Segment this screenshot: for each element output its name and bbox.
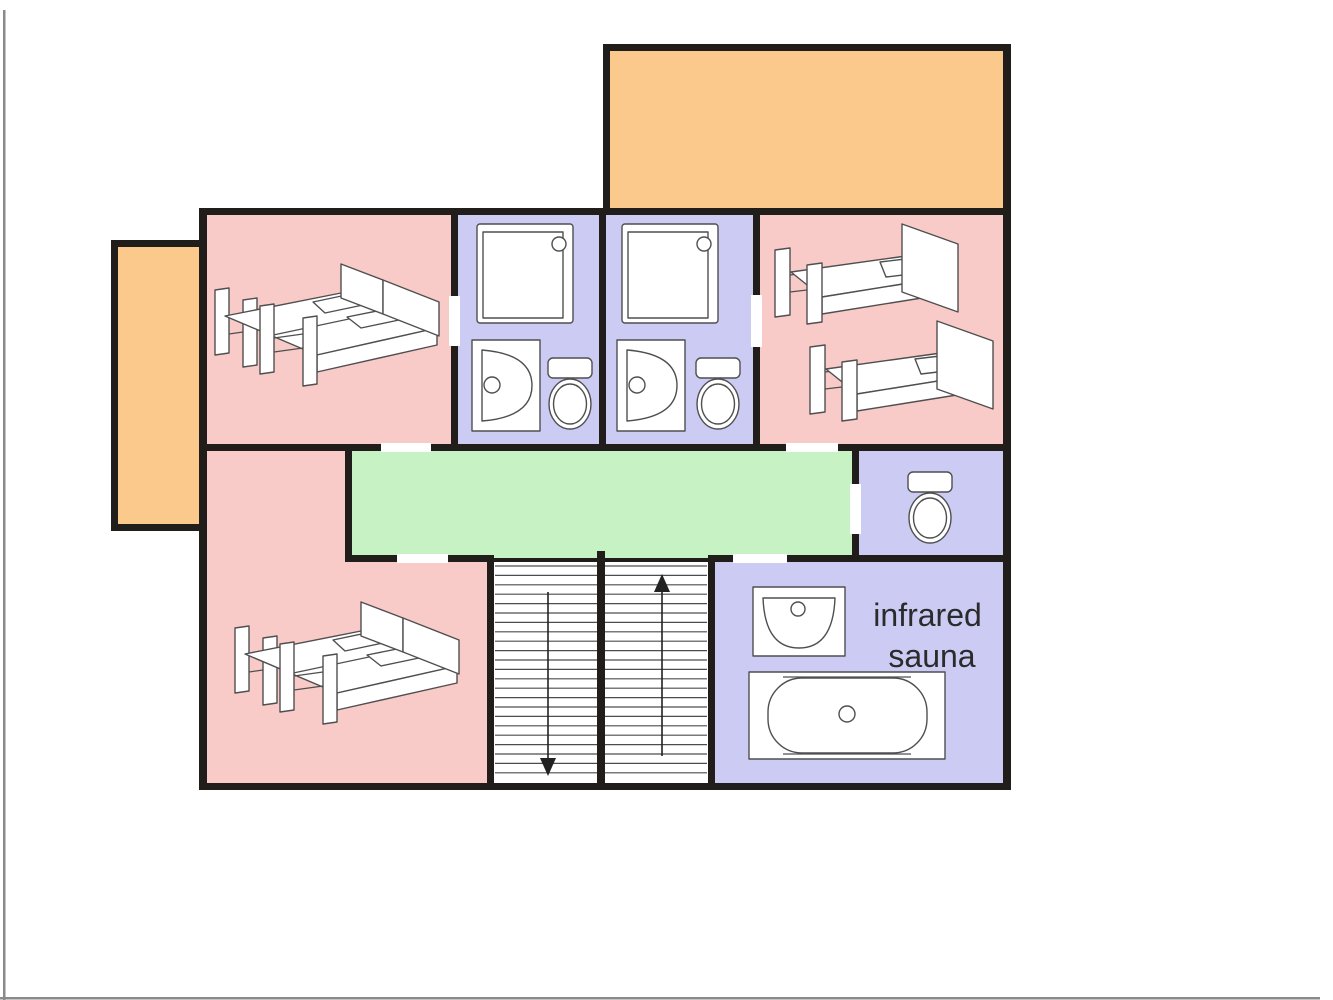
room-terrace-top bbox=[606, 47, 1007, 212]
toilet-icon bbox=[548, 358, 592, 429]
room-corridor bbox=[349, 448, 856, 558]
toilet-icon bbox=[696, 358, 740, 429]
wall-terrace-top-top bbox=[603, 44, 1011, 51]
door-bathroom-2 bbox=[751, 295, 762, 347]
wall-sauna-left bbox=[708, 555, 715, 790]
room-terrace-left bbox=[114, 243, 203, 527]
door-bedroom-top-right bbox=[786, 443, 838, 452]
toilet-icon bbox=[908, 472, 952, 543]
wall-building-right bbox=[1003, 44, 1011, 790]
wall-corridor-left bbox=[345, 444, 352, 562]
wall-terrace-left-left bbox=[111, 240, 118, 531]
door-wc bbox=[850, 484, 861, 534]
wall-terrace-left-top bbox=[111, 240, 203, 247]
wall-building-left bbox=[199, 208, 207, 790]
door-bedroom-top-left bbox=[381, 443, 431, 452]
washbasin-icon bbox=[472, 340, 540, 431]
wall-bathrooms-middle bbox=[599, 208, 606, 451]
wall-stairs-top-edge bbox=[494, 558, 708, 562]
wall-bedroom-bl-right bbox=[487, 555, 494, 790]
wall-terrace-top-left bbox=[603, 44, 610, 215]
washbasin-icon bbox=[753, 587, 845, 656]
wall-stairs-divider bbox=[597, 551, 605, 790]
page-edge-left bbox=[3, 10, 6, 1000]
room-bedroom-top-right bbox=[757, 212, 1007, 448]
wall-mid-horizontal bbox=[199, 444, 1011, 451]
door-bathroom-1 bbox=[449, 296, 460, 346]
sauna-label-line2: sauna bbox=[888, 638, 975, 674]
floor-plan: infrared sauna bbox=[0, 0, 1333, 1000]
washbasin-icon bbox=[617, 340, 685, 431]
door-bedroom-bottom-left bbox=[397, 554, 448, 563]
page-edge-bottom bbox=[0, 997, 1320, 1000]
bathtub-icon bbox=[749, 672, 945, 759]
shower-icon bbox=[477, 224, 573, 323]
door-sauna-bathroom bbox=[733, 554, 787, 563]
wall-terrace-left-bottom bbox=[111, 524, 203, 531]
shower-icon bbox=[622, 224, 718, 323]
floor-plan-canvas: infrared sauna bbox=[0, 0, 1333, 1000]
sauna-label-line1: infrared bbox=[873, 597, 982, 633]
